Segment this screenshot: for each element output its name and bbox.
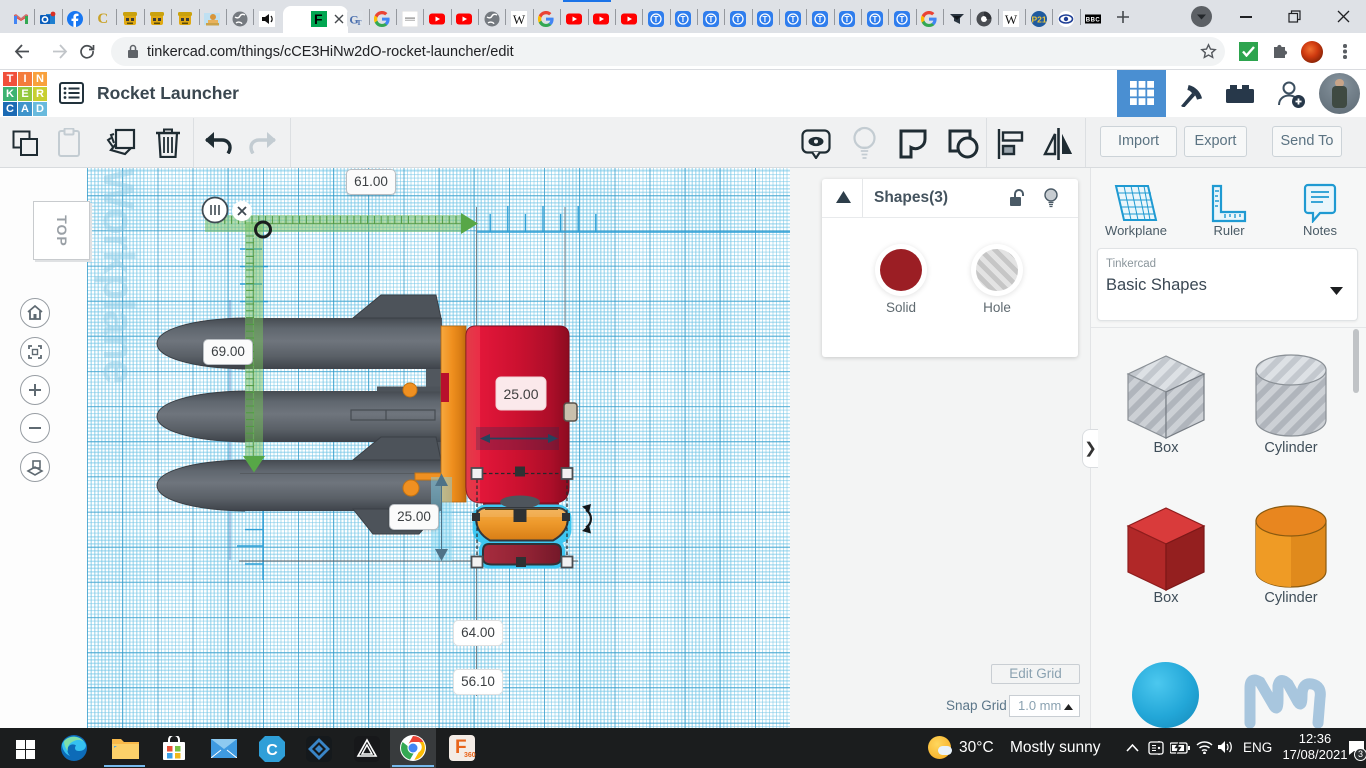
svg-text:W: W	[1005, 12, 1018, 27]
svg-text:T: T	[735, 15, 740, 24]
svg-text:T: T	[681, 15, 686, 24]
svg-text:BBC: BBC	[1086, 18, 1101, 24]
svg-text:25.00: 25.00	[503, 386, 538, 402]
svg-text:T: T	[817, 15, 822, 24]
svg-text:P21: P21	[1031, 15, 1046, 25]
svg-text:C: C	[266, 742, 278, 759]
svg-text:T: T	[900, 15, 905, 24]
svg-text:T: T	[845, 15, 850, 24]
svg-text:T: T	[872, 15, 877, 24]
svg-text:T: T	[790, 15, 795, 24]
svg-text:T: T	[653, 15, 658, 24]
svg-text:T: T	[763, 15, 768, 24]
svg-text:T: T	[708, 15, 713, 24]
svg-text:T: T	[356, 18, 361, 27]
svg-text:W: W	[513, 12, 526, 27]
